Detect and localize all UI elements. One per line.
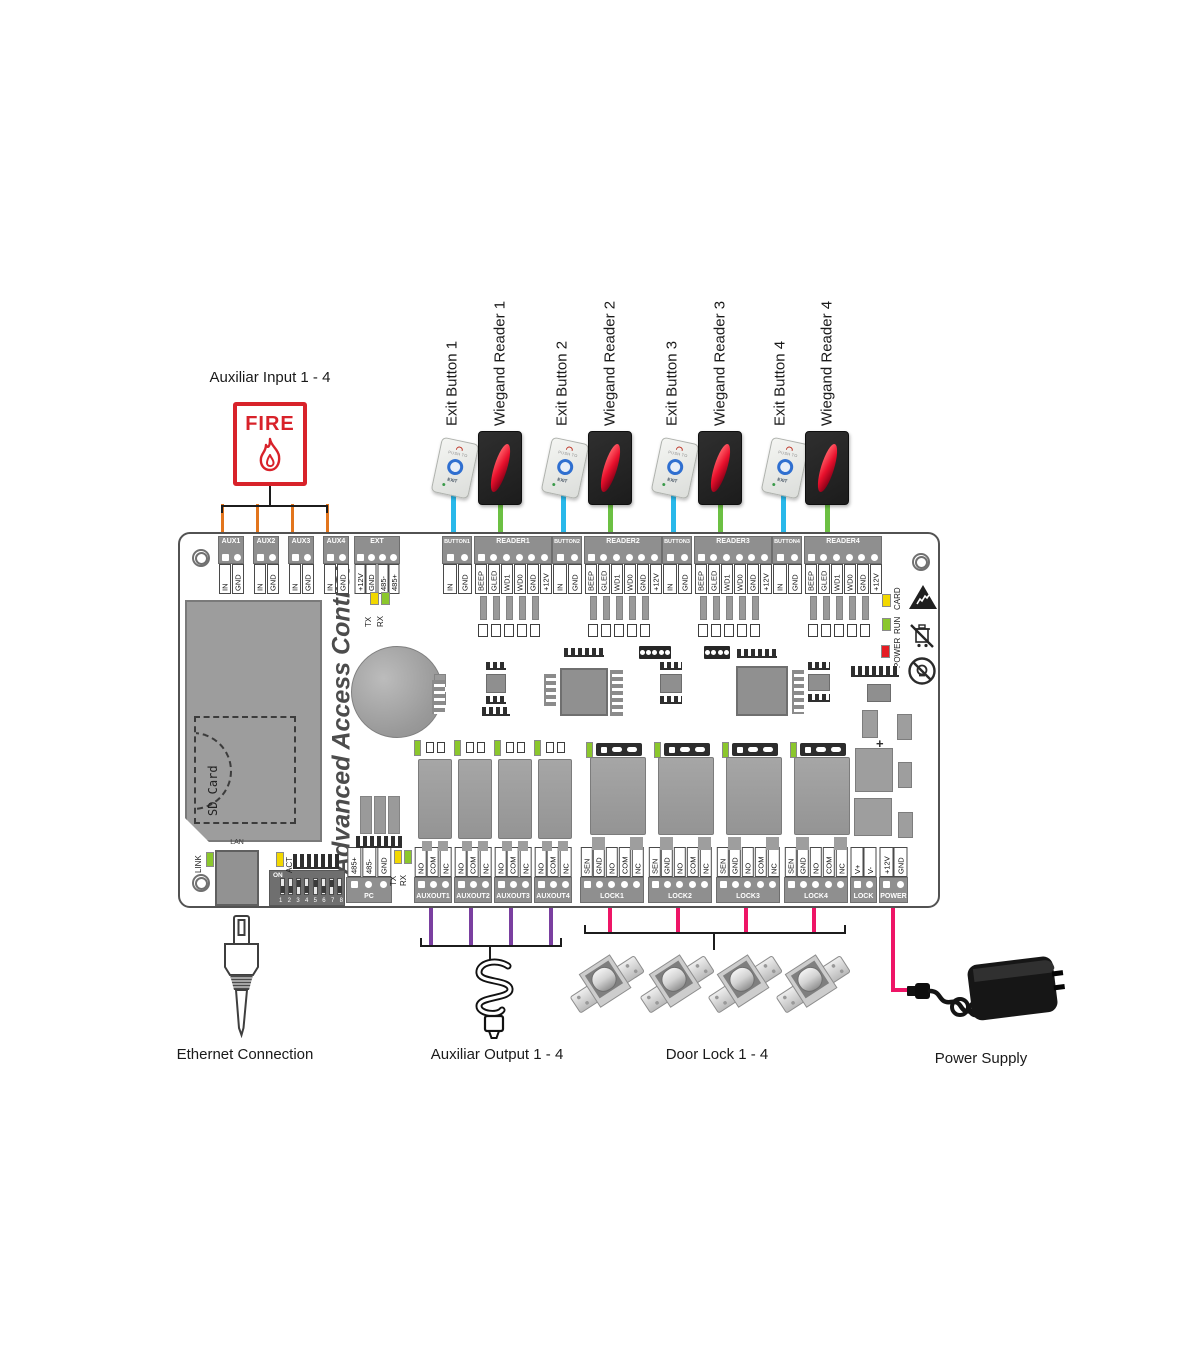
pin-label: SEN (649, 847, 661, 877)
jumper-hole (601, 747, 607, 753)
pin-label: GND (857, 564, 869, 594)
terminal-pin (571, 554, 578, 561)
dip-lever-slider (338, 886, 342, 893)
dip-lever-slider (314, 880, 318, 887)
terminal-pin-labels: SENGNDNOCOMNC (784, 847, 848, 877)
aux-input-bracket (221, 505, 328, 513)
terminal-pin (368, 554, 375, 561)
pin-label: COM (507, 847, 519, 877)
terminal-pin (621, 881, 628, 888)
terminal-pin (510, 881, 517, 888)
terminal-header: LOCK2 (648, 877, 712, 903)
terminal-header: BUTTON2 (552, 536, 582, 564)
lock-relay (590, 757, 646, 835)
terminal-pin (600, 554, 607, 561)
terminal-pin (681, 554, 688, 561)
terminal-header: AUXOUT3 (494, 877, 532, 903)
jumper-hole (748, 747, 758, 752)
dip-number: 8 (340, 898, 343, 904)
resistor-bar (629, 596, 636, 620)
rx-led-label: RX (399, 866, 408, 886)
terminal-auxout3: NOCOMNCAUXOUT3 (494, 847, 532, 903)
terminal-pin (447, 554, 454, 561)
terminal-pin (897, 881, 904, 888)
pin-label: COM (427, 847, 439, 877)
terminal-name: BUTTON1 (443, 537, 471, 547)
pin-label: GLED (708, 564, 720, 594)
terminal-pin (723, 554, 730, 561)
terminal-name: READER4 (805, 537, 881, 547)
terminal-lock3: SENGNDNOCOMNCLOCK3 (716, 847, 780, 903)
solder-pad (630, 837, 643, 850)
terminal-pin (550, 881, 557, 888)
connector-hole (665, 650, 670, 655)
pin-label: IN (254, 564, 266, 594)
relay-led (414, 740, 421, 756)
terminal-header: BUTTON4 (772, 536, 802, 564)
terminal-name: BUTTON2 (553, 537, 581, 547)
connector-header (704, 646, 730, 659)
solder-pad (438, 841, 448, 851)
resistor-bar (810, 596, 817, 620)
pin-label: COM (547, 847, 559, 877)
smd-component (627, 624, 637, 637)
terminal-pin (757, 881, 764, 888)
pin-label: SEN (717, 847, 729, 877)
solder-pad (422, 841, 432, 851)
terminal-pin (380, 881, 387, 888)
terminal-button3: BUTTON3INGND (662, 536, 692, 594)
terminal-pin (461, 554, 468, 561)
jumper (517, 742, 525, 753)
solder-pad (478, 841, 488, 851)
terminal-pins (455, 878, 491, 890)
jumper-hole (737, 747, 743, 753)
pin-row (737, 649, 777, 658)
aux-output-caption: Auxiliar Output 1 - 4 (412, 1046, 582, 1063)
solder-pad (592, 837, 605, 850)
wiegand-reader-2 (588, 431, 632, 505)
terminal-pin (846, 554, 853, 561)
terminal-pin (825, 881, 832, 888)
pin-row (610, 670, 623, 716)
dip-lever (288, 878, 293, 895)
pin-row (792, 670, 804, 714)
terminal-pin (327, 554, 334, 561)
terminal-pin (351, 881, 358, 888)
pin-label: WD1 (831, 564, 843, 594)
terminal-pins (443, 551, 471, 563)
push-to-label: PUSH TO (558, 449, 578, 458)
terminal-reader1: READER1BEEPGLEDWD1WD0GND+12V (474, 536, 552, 594)
fire-label: FIRE (245, 413, 295, 436)
device-label: Exit Button 4 (770, 292, 790, 426)
dip-lever-slider (289, 886, 293, 893)
jumper-hole (612, 747, 622, 752)
pin-label: NC (520, 847, 532, 877)
door-strike-icon (568, 944, 646, 1022)
pin-label: WD1 (501, 564, 513, 594)
pin-label: GLED (488, 564, 500, 594)
terminal-pin (292, 554, 299, 561)
button-led (662, 483, 666, 487)
flame-icon (252, 436, 288, 476)
terminal-header: AUXOUT1 (414, 877, 452, 903)
pin-label: NO (606, 847, 618, 877)
terminal-name: BUTTON3 (663, 537, 691, 547)
terminal-pin (478, 554, 485, 561)
resistor-bar (713, 596, 720, 620)
terminal-pin (871, 554, 878, 561)
capacitor (898, 812, 913, 838)
resistor-bar (836, 596, 843, 620)
smd-component (834, 624, 844, 637)
pin-label: +12V (870, 564, 882, 594)
fire-alarm-box: FIRE (233, 402, 307, 486)
pin-label: 485+ (347, 847, 361, 877)
terminal-button4: BUTTON4INGND (772, 536, 802, 594)
aux-relay (538, 759, 572, 839)
pin-label: GND (458, 564, 472, 594)
lock-relay (726, 757, 782, 835)
screw-hole (912, 553, 930, 571)
terminal-header: AUXOUT4 (534, 877, 572, 903)
terminal-pins (785, 878, 847, 890)
dip-lever-slider (330, 880, 334, 887)
jumper (437, 742, 445, 753)
wiegand-reader-4 (805, 431, 849, 505)
door-lock-1 (568, 944, 646, 1027)
terminal-lock2: SENGNDNOCOMNCLOCK2 (648, 847, 712, 903)
terminal-pin (470, 881, 477, 888)
capacitor (898, 762, 912, 788)
exit-button-wire (671, 492, 676, 534)
dip-lever (321, 878, 326, 895)
exit-label: EXIT (557, 477, 568, 484)
terminal-name: LOCK (851, 892, 876, 902)
aux-relay (498, 759, 532, 839)
terminal-pin (667, 554, 674, 561)
terminal-name: LOCK1 (581, 892, 643, 902)
smd-component (530, 624, 540, 637)
buzzer (351, 646, 443, 738)
terminal-pin (720, 881, 727, 888)
terminal-pin (584, 881, 591, 888)
relay-led (790, 742, 797, 758)
connector-header (639, 646, 671, 659)
wiegand-reader-1 (478, 431, 522, 505)
terminal-pin (626, 554, 633, 561)
terminal-aux2: AUX2INGND (253, 536, 279, 594)
terminal-lock1: SENGNDNOCOMNCLOCK1 (580, 847, 644, 903)
pin-label: GLED (818, 564, 830, 594)
terminal-pin (522, 881, 529, 888)
solder-pad (698, 837, 711, 850)
solder-pad (518, 841, 528, 851)
relay-led (586, 742, 593, 758)
terminal-pins (254, 551, 278, 563)
terminal-pin-labels: INGND (253, 564, 279, 594)
lock-bracket (584, 925, 846, 934)
capacitor (374, 796, 386, 834)
resistor-bar (739, 596, 746, 620)
connector-hole (640, 650, 645, 655)
pin-label: NO (535, 847, 547, 877)
terminal-pin (490, 554, 497, 561)
pin-label: IN (663, 564, 677, 594)
resistor-bar (480, 596, 487, 620)
tx-led-label: TX (364, 607, 373, 627)
pin-row (486, 662, 506, 670)
terminal-pin (732, 881, 739, 888)
pin-label: +12V (760, 564, 772, 594)
capacitor (897, 714, 912, 740)
pin-label: WD0 (624, 564, 636, 594)
terminal-pins (289, 551, 313, 563)
terminal-name: LOCK3 (717, 892, 779, 902)
terminal-pin (812, 881, 819, 888)
terminal-pin (613, 554, 620, 561)
lock-relay (658, 757, 714, 835)
dip-lever (329, 878, 334, 895)
solder-pad (834, 837, 847, 850)
terminal-pin (516, 554, 523, 561)
terminal-aux3: AUX3INGND (288, 536, 314, 594)
dip-lever-slider (305, 886, 309, 893)
ethernet-plug-icon (218, 914, 266, 1043)
small-ic (808, 674, 830, 691)
connector-hole (659, 650, 664, 655)
resistor-bar (823, 596, 830, 620)
connector-hole (718, 650, 723, 655)
terminal-header: LOCK1 (580, 877, 644, 903)
pin-label: NO (742, 847, 754, 877)
relay-led (534, 740, 541, 756)
terminal-pins (581, 878, 643, 890)
screw-hole (192, 549, 210, 567)
pin-label: COM (467, 847, 479, 877)
lan-label: LAN (215, 839, 259, 846)
pin-label: +12V (355, 564, 366, 594)
terminal-pin-labels: INGND (218, 564, 244, 594)
ethernet-caption: Ethernet Connection (160, 1046, 330, 1063)
pin-label: BEEP (805, 564, 817, 594)
pin-label: NC (480, 847, 492, 877)
device-label: Wiegand Reader 4 (817, 292, 837, 426)
resistor-bar (849, 596, 856, 620)
pin-label: NC (560, 847, 572, 877)
terminal-name: AUX1 (219, 537, 243, 547)
pin-label: SEN (581, 847, 593, 877)
connector-hole (646, 650, 651, 655)
terminal-header: READER4 (804, 536, 882, 564)
terminal-pin (808, 554, 815, 561)
exit-button-2: PUSH TOEXIT (541, 437, 590, 500)
smd-component (847, 624, 857, 637)
terminal-pin-labels: BEEPGLEDWD1WD0GND+12V (804, 564, 882, 594)
pin-label: 485+ (389, 564, 400, 594)
jumper-hole (680, 747, 690, 752)
jumper (557, 742, 565, 753)
device-label: Wiegand Reader 3 (710, 292, 730, 426)
terminal-pin (442, 881, 449, 888)
terminal-pin (390, 554, 397, 561)
power-wire (891, 906, 895, 990)
pin-label: GND (797, 847, 809, 877)
pin-label: 485- (362, 847, 376, 877)
relay-led (722, 742, 729, 758)
pin-row (432, 680, 445, 714)
pin-label: COM (823, 847, 835, 877)
pin-label: NC (768, 847, 780, 877)
terminal-header: AUX4 (323, 536, 349, 564)
terminal-header: LOCK4 (784, 877, 848, 903)
terminal-pins (649, 878, 711, 890)
terminal-header: AUX2 (253, 536, 279, 564)
terminal-pin (736, 554, 743, 561)
exit-button-4: PUSH TOEXIT (761, 437, 810, 500)
sd-card-slot: SD Card (194, 716, 296, 824)
terminal-pin (866, 881, 873, 888)
prohibition-icon (907, 656, 937, 691)
dip-lever (304, 878, 309, 895)
resistor-bar (642, 596, 649, 620)
dip-lever-slider (297, 880, 301, 887)
dip-number: 6 (322, 898, 325, 904)
relay-led (654, 742, 661, 758)
pin-label: +12V (880, 847, 894, 877)
screw-hole (192, 874, 210, 892)
pin-label: GND (337, 564, 349, 594)
dip-number: 4 (305, 898, 308, 904)
terminal-button2: BUTTON2INGND (552, 536, 582, 594)
device-label: Exit Button 2 (552, 292, 572, 426)
smd-component (698, 624, 708, 637)
pin-header (293, 854, 339, 869)
jumper-strip (732, 743, 778, 756)
terminal-reader3: READER3BEEPGLEDWD1WD0GND+12V (694, 536, 772, 594)
terminal-pin-labels: SENGNDNOCOMNC (580, 847, 644, 877)
smd-component (504, 624, 514, 637)
pin-label: NC (440, 847, 452, 877)
terminal-name: AUX4 (324, 537, 348, 547)
resistor-bar (532, 596, 539, 620)
pin-label: NO (455, 847, 467, 877)
capacitor (862, 710, 878, 738)
pin-label: GND (747, 564, 759, 594)
pin-label: V+ (851, 847, 864, 877)
terminal-pin (538, 881, 545, 888)
rx-led (404, 850, 412, 864)
pin-label: NO (674, 847, 686, 877)
terminal-name: READER3 (695, 537, 771, 547)
pin-label: GND (568, 564, 582, 594)
jumper-hole (763, 747, 773, 752)
terminal-pin (744, 881, 751, 888)
jumper-hole (627, 747, 637, 752)
smd-component (517, 624, 527, 637)
terminal-pin-labels: +12VGND485-485+ (354, 564, 400, 594)
terminal-pins (535, 878, 571, 890)
terminal-pin (638, 554, 645, 561)
device-label: Exit Button 3 (662, 292, 682, 426)
terminal-header: POWER (879, 877, 908, 903)
pin-label: WD1 (721, 564, 733, 594)
terminal-pin (379, 554, 386, 561)
terminal-pin (769, 881, 776, 888)
run-led (882, 618, 891, 631)
dip-lever (337, 878, 342, 895)
terminal-header: READER1 (474, 536, 552, 564)
device-label: Wiegand Reader 2 (600, 292, 620, 426)
door-strike-icon (638, 944, 716, 1022)
terminal-pin (234, 554, 241, 561)
terminal-header: LOCK (850, 877, 877, 903)
terminal-pins (805, 551, 881, 563)
pin-label: IN (443, 564, 457, 594)
dip-lever-slider (281, 886, 285, 893)
terminal-pin (761, 554, 768, 561)
terminal-name: LOCK2 (649, 892, 711, 902)
terminal-pin (701, 881, 708, 888)
pin-label: WD1 (611, 564, 623, 594)
terminal-pins (663, 551, 691, 563)
terminal-pin (304, 554, 311, 561)
aux-relay (458, 759, 492, 839)
exit-button-1: PUSH TOEXIT (431, 437, 480, 500)
solder-pad (558, 841, 568, 851)
pin-label: +12V (540, 564, 552, 594)
board-title: Advanced Access Control (326, 596, 358, 846)
tx-led-label: TX (389, 866, 398, 886)
pin-row (482, 707, 510, 716)
terminal-pin (339, 554, 346, 561)
smd-component (737, 624, 747, 637)
controller-board: SD Card Advanced Access Control LAN ON 1… (178, 532, 940, 908)
terminal-pins (880, 878, 907, 890)
terminal-aux4: AUX4INGND (323, 536, 349, 594)
terminal-header: READER3 (694, 536, 772, 564)
aux-relay (418, 759, 452, 839)
resistor-bar (726, 596, 733, 620)
pin-label: GND (894, 847, 908, 877)
smd-component (640, 624, 650, 637)
terminal-pin (791, 554, 798, 561)
resistor-bar (616, 596, 623, 620)
lock-relay (794, 757, 850, 835)
terminal-pin-labels: INGND (552, 564, 582, 594)
pin-label: BEEP (585, 564, 597, 594)
terminal-pin-labels: INGND (323, 564, 349, 594)
jumper-strip (596, 743, 642, 756)
dip-switch-levers (280, 878, 342, 895)
dip-switch: ON 12345678 (269, 870, 345, 906)
small-ic (486, 674, 506, 693)
smd-component (808, 624, 818, 637)
terminal-pin (458, 881, 465, 888)
pin-label: BEEP (475, 564, 487, 594)
jumper (506, 742, 514, 753)
tx-led (370, 592, 379, 605)
pin-row (544, 674, 556, 706)
cfl-bulb-icon (466, 956, 522, 1051)
weee-bin-icon (909, 620, 935, 655)
pin-label: COM (755, 847, 767, 877)
aux-input-label: Auxiliar Input 1 - 4 (198, 369, 342, 386)
jumper-strip (664, 743, 710, 756)
pin-label: GND (302, 564, 314, 594)
fire-wire-stem (269, 486, 271, 506)
